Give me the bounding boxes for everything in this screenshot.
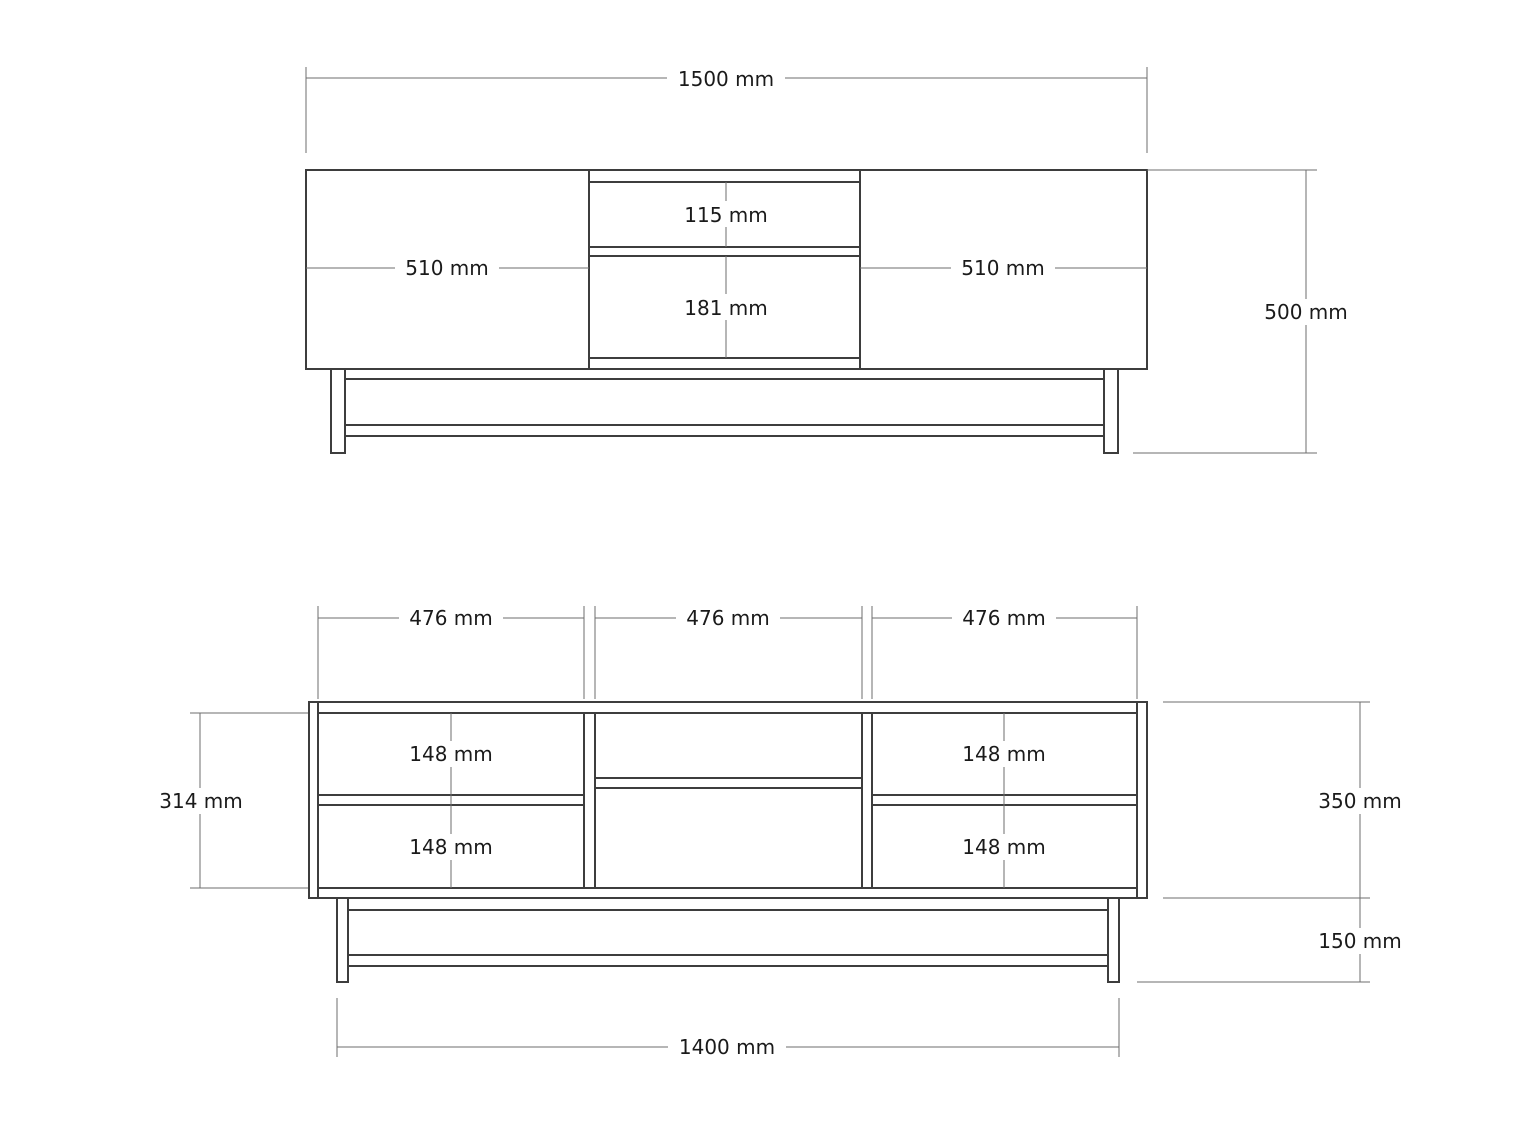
leg-height-dimension: 150 mm [1137,898,1413,982]
front-left-leg [331,369,345,453]
leg-height-label: 150 mm [1318,929,1402,953]
carcass-height-dimension: 350 mm [1163,702,1413,898]
right-door-width-label: 510 mm [961,256,1045,280]
left-upper-cubby-height-label: 148 mm [409,742,493,766]
interior-cabinet-outline [309,702,1147,898]
front-overall-height-dimension: 500 mm [1133,170,1359,453]
base-width-dimension: 1400 mm [337,998,1119,1060]
interior-left-leg [337,898,348,982]
front-overall-width-label: 1500 mm [678,67,774,91]
right-upper-cubby-height-label: 148 mm [962,742,1046,766]
interior-view: 476 mm 476 mm 476 mm 148 mm 148 mm 148 m… [148,605,1413,1060]
carcass-height-label: 350 mm [1318,789,1402,813]
interior-right-leg [1108,898,1119,982]
drawing-svg: 1500 mm 500 mm 510 mm 510 mm 115 mm 181 … [0,0,1531,1148]
base-width-label: 1400 mm [679,1035,775,1059]
front-right-leg [1104,369,1118,453]
compartment-width-dimensions: 476 mm 476 mm 476 mm [318,605,1137,699]
left-compartment-width-label: 476 mm [409,606,493,630]
top-drawer-height-label: 115 mm [684,203,768,227]
front-overall-width-dimension: 1500 mm [306,65,1147,153]
interior-height-dimension: 314 mm [148,713,308,888]
interior-height-label: 314 mm [159,789,243,813]
right-lower-cubby-height-label: 148 mm [962,835,1046,859]
center-compartment-width-label: 476 mm [686,606,770,630]
right-compartment-width-label: 476 mm [962,606,1046,630]
left-lower-cubby-height-label: 148 mm [409,835,493,859]
front-view: 1500 mm 500 mm 510 mm 510 mm 115 mm 181 … [306,65,1359,453]
front-overall-height-label: 500 mm [1264,300,1348,324]
bottom-drawer-height-label: 181 mm [684,296,768,320]
tv-stand-dimension-drawing: 1500 mm 500 mm 510 mm 510 mm 115 mm 181 … [0,0,1531,1148]
left-door-width-label: 510 mm [405,256,489,280]
